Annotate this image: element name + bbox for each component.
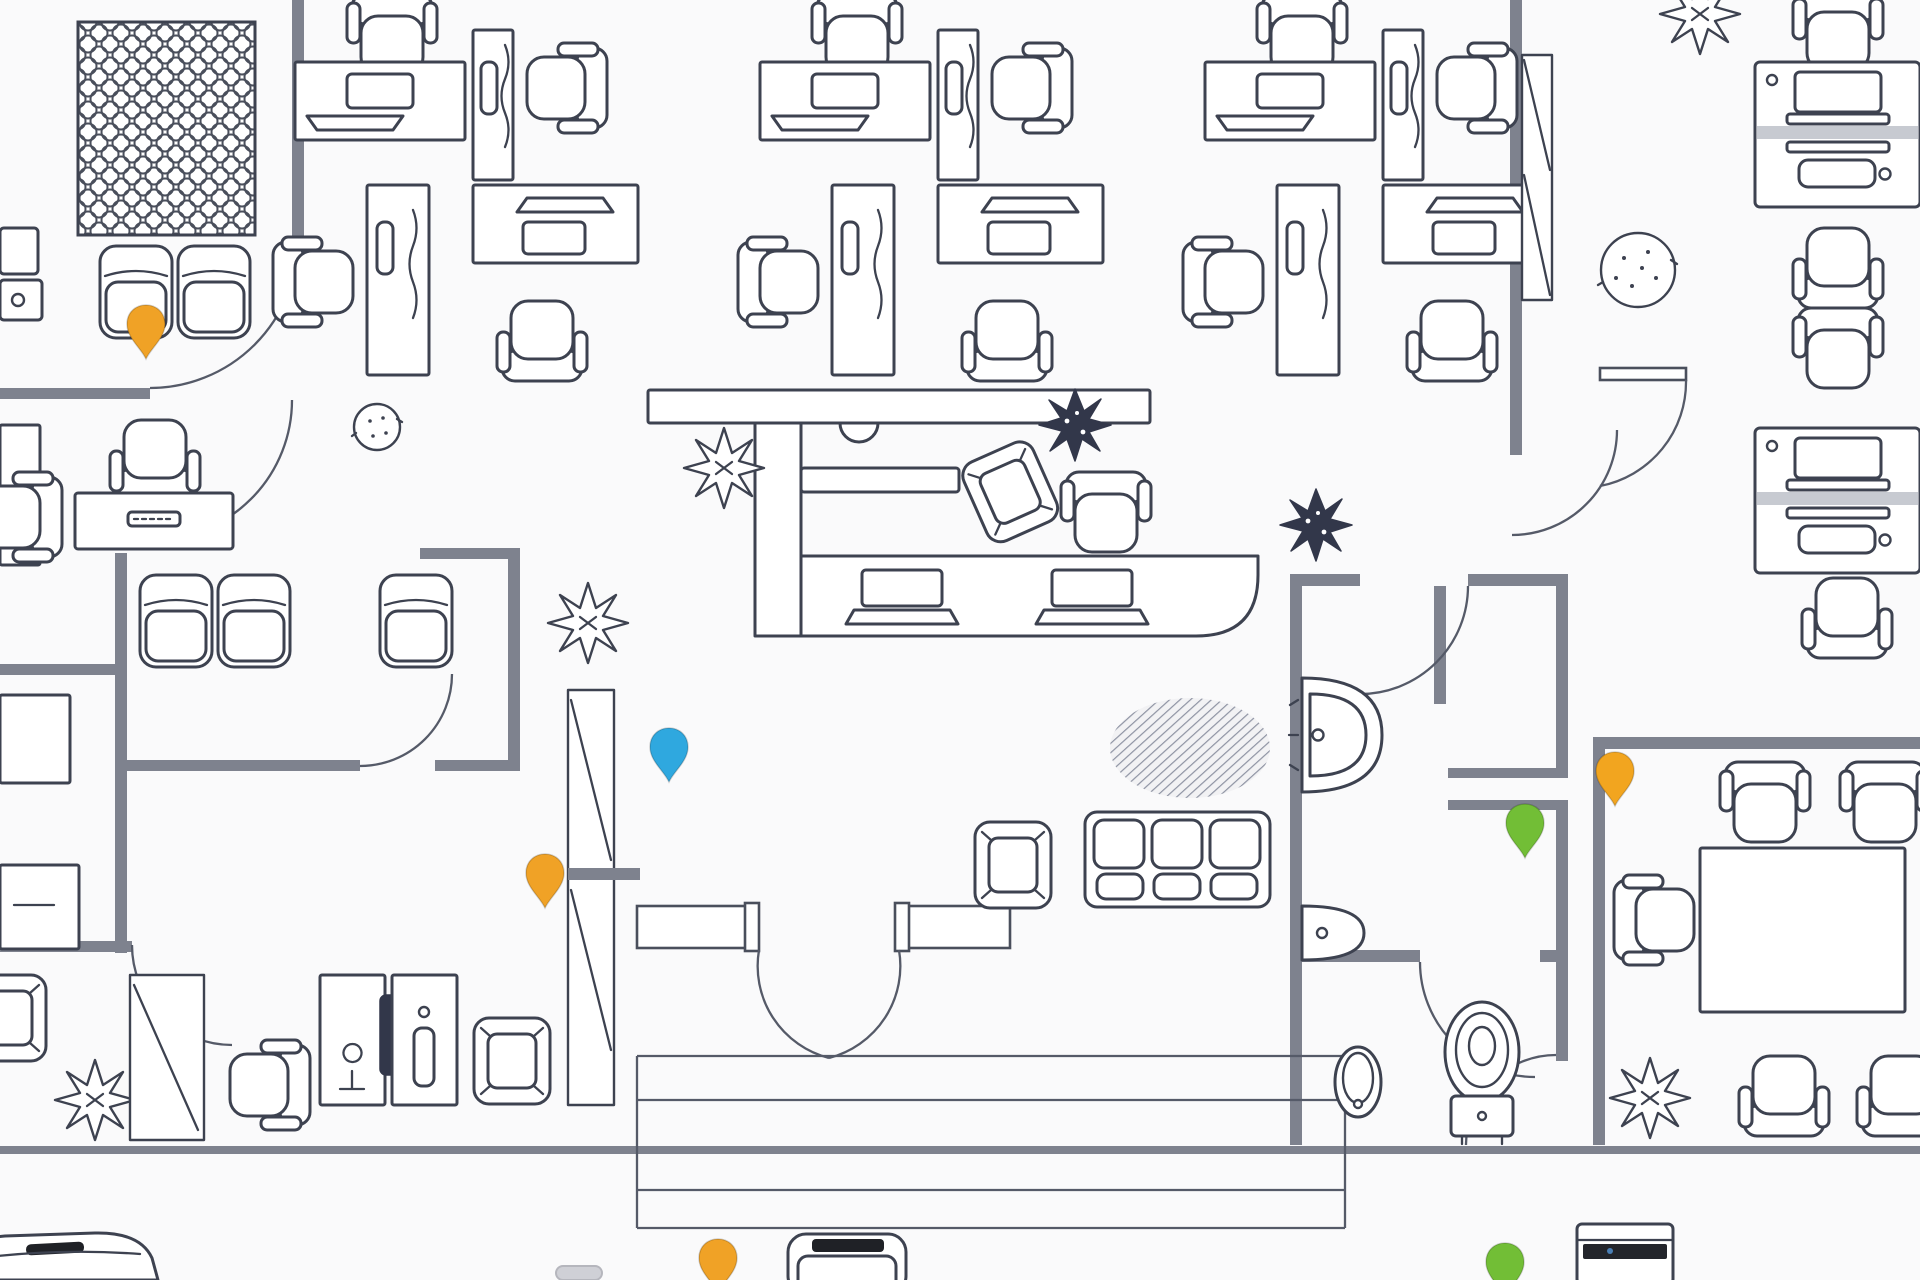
reception-desk bbox=[648, 390, 1258, 636]
double-desk-icon bbox=[1755, 62, 1920, 207]
meeting-room-top-left bbox=[0, 22, 255, 338]
armchair-icon bbox=[0, 975, 46, 1061]
legend-vending-icon bbox=[1577, 1224, 1673, 1280]
double-door-icon bbox=[758, 950, 829, 1058]
bathroom-upper bbox=[1289, 678, 1382, 792]
plant-spiky-icon bbox=[1610, 1058, 1690, 1138]
armchair-icon bbox=[474, 1018, 550, 1104]
shelf-cabinet-icon bbox=[1522, 55, 1552, 300]
desk-cluster-icon bbox=[273, 0, 638, 381]
map-pin-2[interactable] bbox=[650, 728, 688, 782]
rug-icon bbox=[1110, 698, 1270, 798]
waiting-area bbox=[140, 575, 452, 667]
stool-chair-icon bbox=[380, 575, 452, 667]
conference-table-icon bbox=[1700, 848, 1905, 1012]
entrance bbox=[637, 903, 1010, 1058]
office-left-middle bbox=[0, 420, 233, 565]
double-desk-icon bbox=[1755, 428, 1920, 573]
office-chair-icon bbox=[1857, 1056, 1920, 1136]
plant-spiky-icon bbox=[55, 1060, 135, 1140]
office-chair-icon bbox=[0, 472, 62, 562]
shelf-cabinet-icon bbox=[568, 690, 640, 1105]
office-chair-icon bbox=[1840, 762, 1920, 842]
stool-chair-icon bbox=[178, 246, 250, 338]
office-chair-icon bbox=[230, 1040, 310, 1130]
desk-cluster-icon bbox=[1183, 0, 1548, 381]
armchair-icon bbox=[958, 437, 1062, 546]
stool-chair-icon bbox=[218, 575, 290, 667]
plant-spiky-icon bbox=[684, 428, 764, 508]
desk-clusters bbox=[273, 0, 1548, 381]
legend-chair-icon bbox=[788, 1234, 906, 1280]
map-pin-5[interactable] bbox=[1506, 804, 1544, 858]
legend-pin-orange[interactable] bbox=[699, 1239, 737, 1280]
legend-sofa-car-icon bbox=[0, 1233, 158, 1280]
plant-dark-icon bbox=[1280, 489, 1352, 561]
plant-dark-icon bbox=[1039, 389, 1111, 461]
office-chair-icon bbox=[1614, 875, 1694, 965]
plant-spiky-icon bbox=[548, 583, 628, 663]
office-chair-icon bbox=[1739, 1056, 1829, 1136]
steps-icon bbox=[637, 1056, 1345, 1228]
legend-partial-icon bbox=[556, 1266, 602, 1280]
plant-round-icon bbox=[352, 404, 402, 450]
legend-bar bbox=[0, 1224, 1673, 1280]
bathroom-lower bbox=[1302, 906, 1519, 1144]
lounge bbox=[975, 698, 1270, 908]
armchair-icon bbox=[975, 822, 1051, 908]
lattice-table-icon bbox=[78, 22, 255, 235]
map-pin-1[interactable] bbox=[127, 305, 165, 359]
office-chair-icon bbox=[1802, 578, 1892, 658]
stool-chair-icon bbox=[140, 575, 212, 667]
desk-cluster-icon bbox=[738, 0, 1103, 381]
office-chair-icon bbox=[1793, 308, 1883, 388]
toilet-icon bbox=[1445, 1002, 1519, 1144]
legend-pin-green[interactable] bbox=[1486, 1243, 1524, 1280]
right-desk-column bbox=[1598, 0, 1920, 658]
plant-spiky-icon bbox=[1660, 0, 1740, 54]
office-chair-icon bbox=[1793, 228, 1883, 308]
conference-room bbox=[1610, 762, 1920, 1138]
sofa-icon bbox=[1085, 812, 1270, 907]
office-chair-icon bbox=[1793, 0, 1883, 70]
map-pins-layer bbox=[127, 305, 1634, 1280]
map-pin-3[interactable] bbox=[526, 854, 564, 908]
floor-plan-stage bbox=[0, 0, 1920, 1280]
office-chair-icon bbox=[1720, 762, 1810, 842]
office-chair-icon bbox=[110, 420, 200, 500]
office-chair-icon bbox=[1061, 472, 1151, 552]
floor-plan-canvas[interactable] bbox=[0, 0, 1920, 1280]
printer-icon bbox=[0, 228, 38, 274]
stone-pot-icon bbox=[1598, 233, 1677, 307]
